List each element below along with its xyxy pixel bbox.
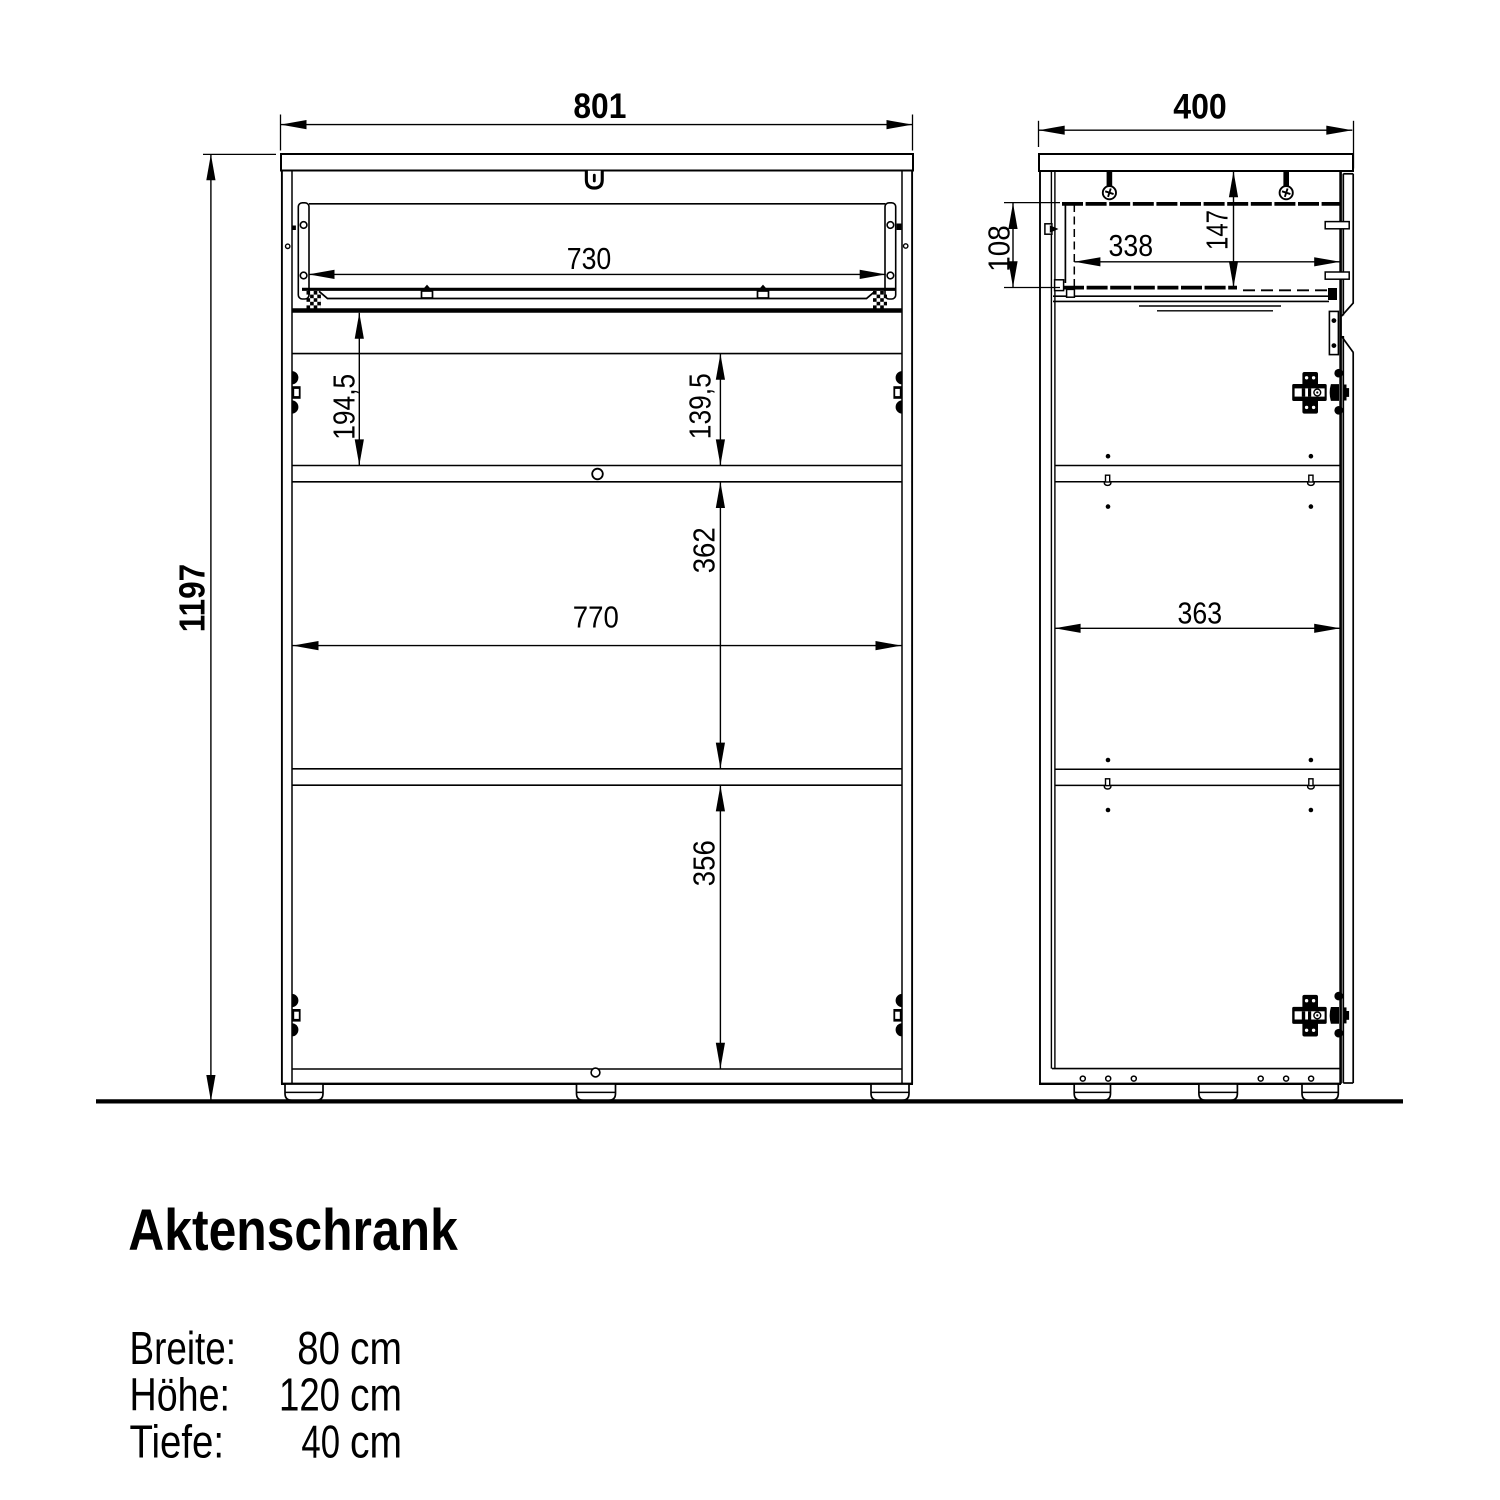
svg-text:730: 730 xyxy=(567,242,612,276)
svg-text:40: 40 xyxy=(301,1416,340,1468)
svg-text:801: 801 xyxy=(573,87,626,126)
svg-text:cm: cm xyxy=(350,1369,402,1421)
svg-text:139,5: 139,5 xyxy=(683,373,718,439)
svg-text:108: 108 xyxy=(982,225,1017,272)
svg-text:Aktenschrank: Aktenschrank xyxy=(128,1198,458,1263)
svg-text:80: 80 xyxy=(297,1322,340,1374)
svg-text:338: 338 xyxy=(1109,229,1154,263)
svg-text:120: 120 xyxy=(279,1369,340,1421)
svg-text:cm: cm xyxy=(350,1416,402,1468)
svg-text:362: 362 xyxy=(687,527,722,573)
svg-text:400: 400 xyxy=(1173,87,1227,126)
svg-text:356: 356 xyxy=(687,840,722,886)
svg-text:Höhe:: Höhe: xyxy=(130,1369,231,1421)
svg-text:363: 363 xyxy=(1178,596,1223,630)
svg-text:194,5: 194,5 xyxy=(327,374,362,440)
svg-text:1197: 1197 xyxy=(172,564,213,633)
svg-text:770: 770 xyxy=(573,600,619,634)
svg-text:147: 147 xyxy=(1200,210,1235,250)
svg-text:cm: cm xyxy=(350,1322,402,1374)
svg-text:Tiefe:: Tiefe: xyxy=(130,1416,225,1468)
svg-text:Breite:: Breite: xyxy=(130,1322,237,1374)
